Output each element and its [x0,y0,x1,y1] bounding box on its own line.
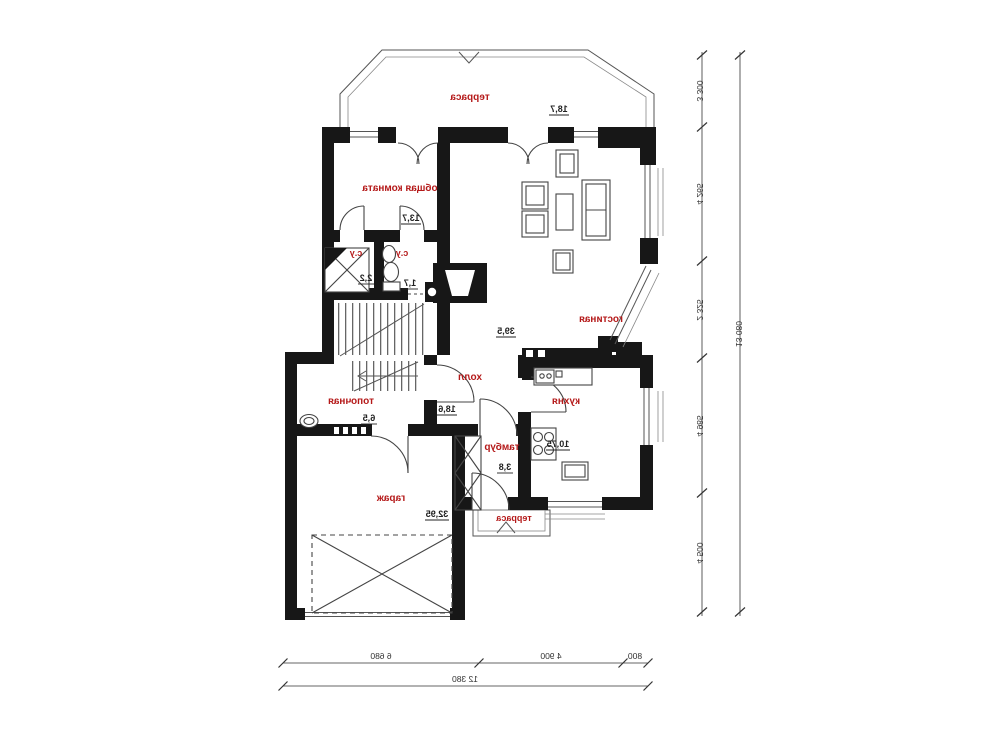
dim-v-total: 13 080 [734,321,744,347]
room-area-living-room: 39,5 [497,326,515,336]
chair [553,250,573,273]
washbasin [383,246,396,263]
toilet [383,263,400,292]
window-bay-east [645,165,663,238]
door-garage [371,436,408,473]
kitchen-table [562,462,588,480]
room-area-terrace-top: 18,7 [550,104,568,114]
room-label-tambour: тамбур [484,441,519,453]
room-labels: терраса 18,7 общая комната 13,7 с.у 2,2 … [328,92,623,523]
stairs [338,304,426,391]
dim-v-4: 4 500 [695,542,705,564]
room-area-garage: 32,95 [426,509,449,519]
room-area-boiler-room: 6,5 [363,413,376,423]
room-label-hall: холл [458,372,482,383]
dim-h-total: 12 380 [452,674,478,684]
floor-plan-page: терраса 18,7 общая комната 13,7 с.у 2,2 … [0,0,1000,750]
dim-v-3: 4 985 [695,415,705,437]
room-area-wc-left: 2,2 [360,273,373,283]
door-wc-left [340,206,364,230]
coffee-table [556,194,573,230]
window-top-right [574,132,598,138]
terrace-top-outline [340,50,654,127]
dim-v-0: 3 300 [695,80,705,102]
dim-v-2: 2 325 [695,299,705,321]
dim-v-1: 4 265 [695,183,705,205]
sofa [582,180,610,240]
dim-h-1: 4 900 [540,651,562,661]
dim-h-0: 6 680 [370,651,392,661]
terrace-entry-arrow [459,52,479,63]
kitchen-counter [534,368,592,385]
room-label-boiler-room: топочная [328,396,374,407]
room-area-tambour: 3,8 [499,462,512,472]
room-label-garage: гараж [376,493,405,504]
car-space [312,535,452,613]
door-boiler-room [437,365,474,402]
dim-h-2: 800 [628,651,642,661]
window-kitchen-east [644,388,663,445]
room-label-terrace-bottom: терраса [495,513,532,523]
room-label-common-room: общая комната [362,182,438,194]
room-label-wc-right: с.у [396,248,409,258]
room-label-terrace-top: терраса [450,92,490,103]
room-area-common-room: 13,7 [402,213,420,223]
door-double-common-room [398,143,438,164]
boiler-sink [300,415,318,428]
door-double-living-room [508,143,548,164]
floor-plan-drawing: терраса 18,7 общая комната 13,7 с.у 2,2 … [0,0,1000,750]
room-area-hall: 18,6 [438,404,456,414]
room-label-wc-left: с.у [350,248,363,258]
room-area-wc-right: 1,7 [404,278,417,288]
armchair [522,211,548,237]
furniture [522,150,610,273]
window-bay-angled [610,266,659,347]
door-tambour-north [480,399,517,436]
window-kitchen-south [545,502,605,520]
tv-cabinet [556,150,578,177]
room-label-living-room: гостиная [579,314,623,325]
room-label-kitchen: кухня [552,396,580,407]
dimensions: 3 300 4 265 2 325 4 985 4 500 13 080 6 6… [279,51,746,691]
window-top-left [350,132,378,138]
room-area-kitchen: 10,75 [547,439,570,449]
armchair [522,182,548,209]
